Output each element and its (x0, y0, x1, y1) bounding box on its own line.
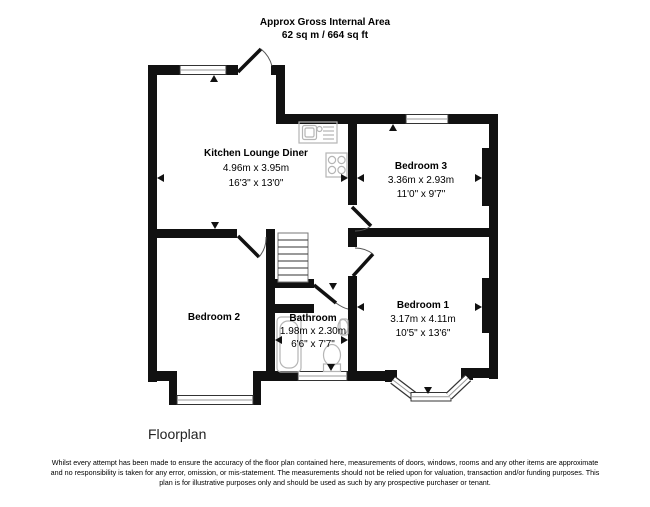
plan-caption: Floorplan (148, 426, 206, 442)
dimension-arrow-right-icon (475, 174, 482, 182)
room-dim-metric: 3.36m x 2.93m (388, 174, 454, 188)
door-bed1 (353, 248, 373, 276)
room-dim-metric: 1.98m x 2.30m (280, 325, 346, 338)
room-name: Kitchen Lounge Diner (204, 146, 308, 161)
window-bathroom (298, 372, 347, 381)
disclaimer-text: Whilst every attempt has been made to en… (45, 458, 605, 487)
dimension-arrow-down-icon (327, 364, 335, 371)
room-label-bed2: Bedroom 2 (188, 310, 240, 325)
window-bed2-bay (177, 396, 253, 405)
dimension-arrow-down-icon (211, 222, 219, 229)
door-kitchen-hall (238, 236, 266, 257)
door-front (238, 49, 272, 72)
room-dim-metric: 4.96m x 3.95m (204, 161, 308, 176)
dimension-arrow-up-icon (389, 124, 397, 131)
sink-icon (299, 122, 337, 143)
room-name: Bedroom 1 (390, 299, 455, 313)
room-dim-metric: 3.17m x 4.11m (390, 313, 455, 327)
dimension-arrow-right-icon (475, 303, 482, 311)
chimney-breast-bed3 (482, 148, 498, 206)
room-label-bed3: Bedroom 3 3.36m x 2.93m 11'0" x 9'7" (388, 160, 454, 202)
stairs (278, 233, 308, 282)
window-bed3 (406, 115, 448, 124)
floorplan-drawing (0, 0, 650, 420)
dimension-arrow-down-icon (329, 283, 337, 290)
room-name: Bathroom (280, 312, 346, 325)
room-dim-imperial: 11'0" x 9'7" (388, 188, 454, 202)
floorplan-page: Approx Gross Internal Area 62 sq m / 664… (0, 0, 650, 507)
dimension-arrow-left-icon (157, 174, 164, 182)
room-label-bed1: Bedroom 1 3.17m x 4.11m 10'5" x 13'6" (390, 299, 455, 341)
dimension-arrow-left-icon (357, 174, 364, 182)
hob-icon (326, 153, 347, 177)
door-bed3 (352, 207, 371, 231)
room-name: Bedroom 2 (188, 310, 240, 325)
room-name: Bedroom 3 (388, 160, 454, 174)
dimension-arrow-left-icon (357, 303, 364, 311)
chimney-breast-bed1 (482, 278, 498, 333)
room-label-bathroom: Bathroom 1.98m x 2.30m 6'6" x 7'7" (280, 312, 346, 351)
window-kitchen (180, 66, 226, 75)
room-label-kitchen: Kitchen Lounge Diner 4.96m x 3.95m 16'3"… (204, 146, 308, 191)
room-dim-imperial: 16'3" x 13'0" (204, 176, 308, 191)
door-bathroom (314, 285, 348, 309)
room-dim-imperial: 6'6" x 7'7" (280, 338, 346, 351)
room-dim-imperial: 10'5" x 13'6" (390, 327, 455, 341)
dimension-arrow-up-icon (210, 75, 218, 82)
